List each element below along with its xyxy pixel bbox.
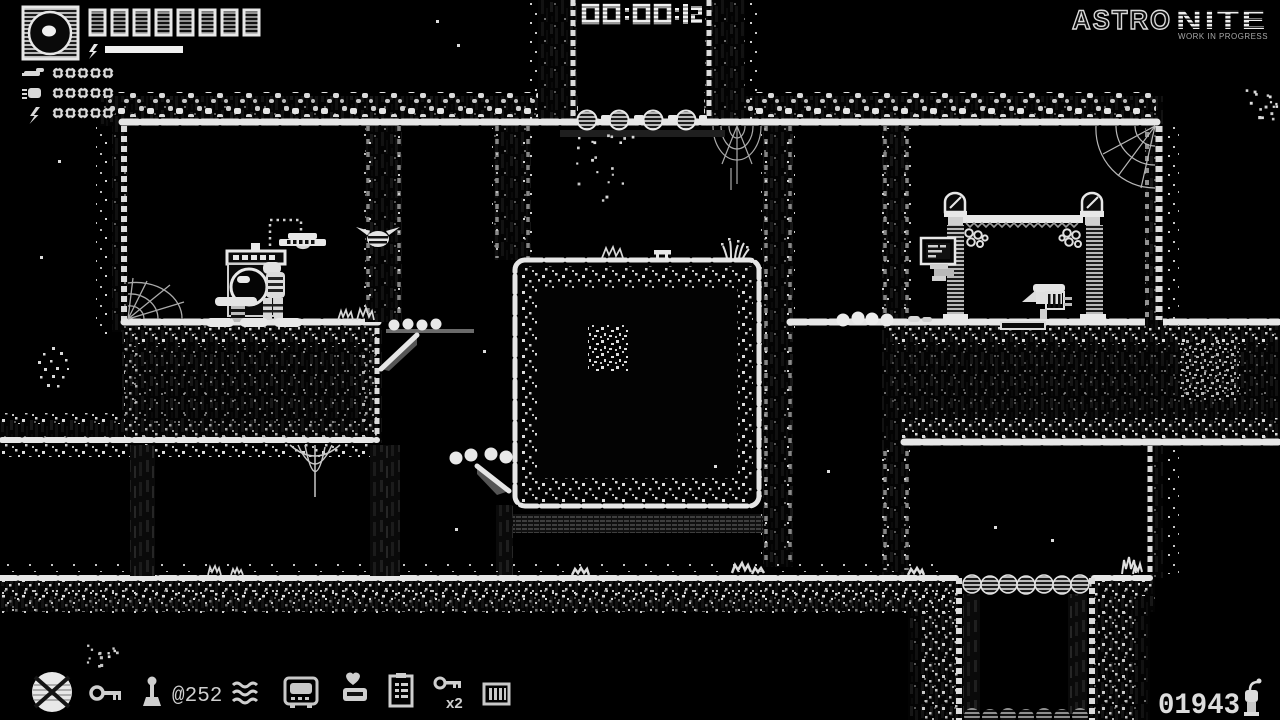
svg-text:WORK IN PROGRESS: WORK IN PROGRESS bbox=[1178, 32, 1268, 41]
svg-text:@252: @252 bbox=[172, 685, 222, 708]
svg-text:NITE: NITE bbox=[1176, 5, 1268, 35]
svg-text:ASTRO: ASTRO bbox=[1072, 5, 1172, 35]
svg-text:x2: x2 bbox=[446, 695, 463, 712]
svg-text:01943: 01943 bbox=[1158, 689, 1240, 720]
